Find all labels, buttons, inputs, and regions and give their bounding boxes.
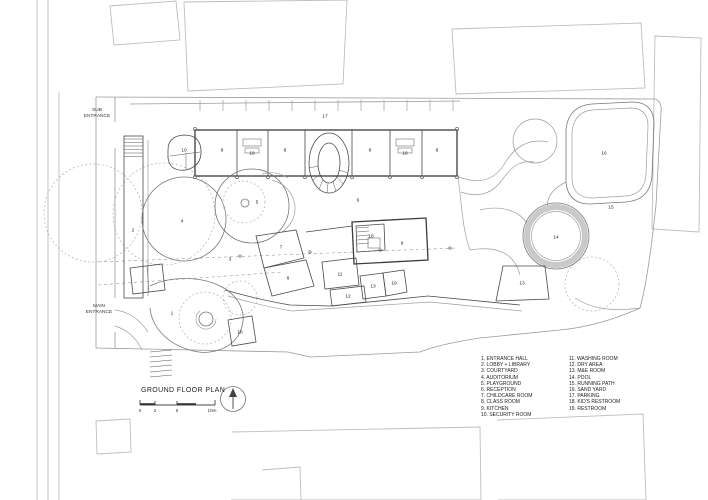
room-number-label: 18	[249, 150, 255, 156]
setback-lines	[98, 247, 457, 285]
floor-plan-sheet: 0 2 5 10m 123456788888910111213131415161…	[0, 0, 708, 500]
sand-yard	[566, 102, 654, 204]
site-plan-drawing: 0 2 5 10m 123456788888910111213131415161…	[0, 0, 708, 500]
room-number-label: 17	[322, 113, 328, 119]
legend-item: 19. RESTROOM	[569, 406, 645, 412]
room-number-label: 18	[237, 329, 243, 335]
auditorium-circle	[142, 177, 226, 261]
room-number-label: 18	[402, 150, 408, 156]
room-number-label: 5	[256, 199, 259, 205]
room-number-label: 8	[221, 147, 224, 153]
main-entrance-label: MAIN ENTRANCE	[83, 304, 115, 315]
room-number-label: 16	[601, 150, 607, 156]
room-number-label: 13	[519, 280, 525, 286]
room-number-label: 8	[369, 147, 372, 153]
room-number-label: 12	[345, 293, 351, 299]
room-number-label: 10	[181, 147, 187, 153]
classroom-bar	[193, 127, 458, 178]
scale-tick-0: 0	[139, 408, 142, 413]
room-number-label: 2	[132, 227, 135, 233]
room-number-label: 15	[608, 204, 614, 210]
legend-col-2: 11. WASHING ROOM12. DRY AREA13. M&E ROOM…	[569, 356, 645, 418]
legend-item: 10. SECURITY ROOM	[481, 412, 557, 418]
road-lines	[37, 0, 59, 500]
garden-paths	[458, 119, 640, 310]
room-number-label: 6	[357, 197, 360, 203]
room-number-label: 8	[436, 147, 439, 153]
plan-title: GROUND FLOOR PLAN	[141, 387, 225, 394]
scale-tick-10m: 10m	[208, 408, 217, 413]
legend-col-1: 1. ENTRANCE HALL2. LOBBY + LIBRARY3. COU…	[481, 356, 557, 418]
spiral-stair	[309, 133, 349, 193]
south-wing	[225, 218, 522, 311]
scale-tick-2: 2	[154, 408, 157, 413]
room-number-label: 19	[391, 280, 397, 286]
entrance-hall	[115, 264, 256, 377]
sub-entrance-label: SUB ENTRANCE	[82, 108, 112, 119]
room-number-label: 7	[280, 244, 283, 250]
room-number-label: 4	[181, 218, 184, 224]
room-number-label: 13	[370, 283, 376, 289]
site-boundary	[96, 97, 661, 357]
room-number-label: 8	[284, 147, 287, 153]
room-number-label: 1	[171, 310, 174, 316]
room-number-label: 8	[287, 275, 290, 281]
library-wing	[124, 136, 148, 298]
room-number-label: 14	[553, 234, 559, 240]
room-number-label: 11	[338, 271, 343, 277]
room-number-label: 9	[401, 240, 404, 246]
room-number-label: 3	[229, 256, 232, 262]
room-number-label: 18	[368, 233, 374, 239]
room-legend: 1. ENTRANCE HALL2. LOBBY + LIBRARY3. COU…	[481, 356, 645, 418]
scale-bar: 0 2 5 10m	[139, 400, 217, 413]
scale-tick-5: 5	[176, 408, 179, 413]
